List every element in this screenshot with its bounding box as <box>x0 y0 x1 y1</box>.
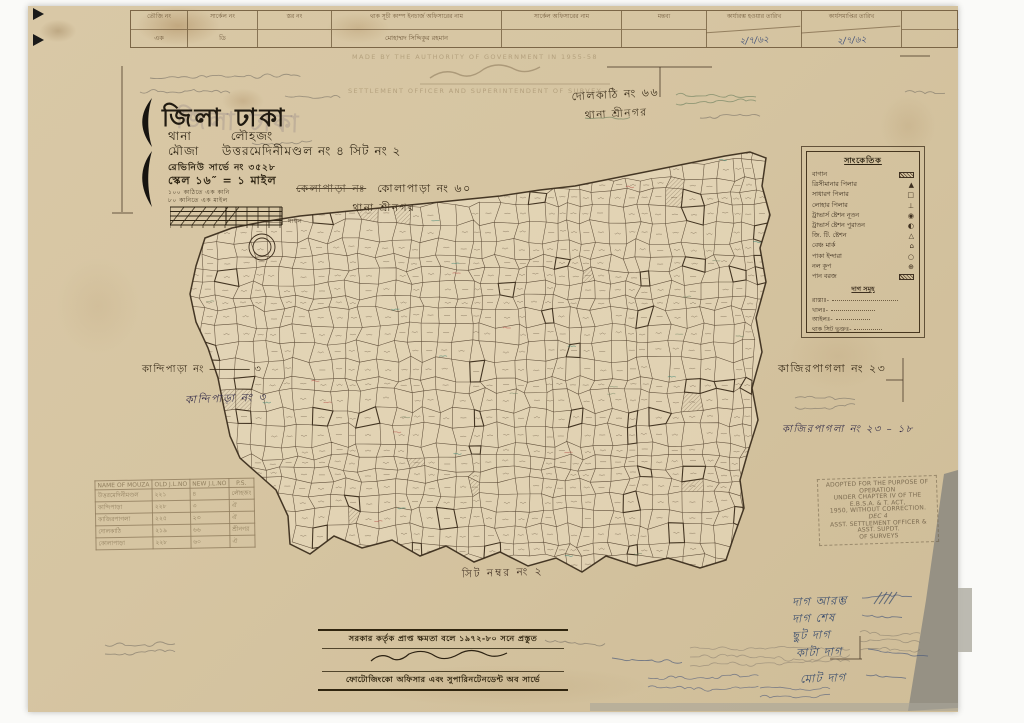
legend-item: লোহার পিলার⊥ <box>812 201 914 211</box>
legend-item: পাকা ইন্দারা○ <box>812 252 914 262</box>
neighbour-label-kazirpagla-printed: কাজিরপাগলা নং ২৩ <box>778 360 886 379</box>
mouza-table-cell: ২২১ <box>152 488 190 501</box>
mouza-table-cell: ৩ <box>190 500 229 513</box>
mouza-table-cell: কোলাপাড়া <box>96 537 153 550</box>
legend-box: সাংকেতিক বাগানত্রিসীমানার পিলার▲সাধারণ প… <box>806 151 920 333</box>
thana-value: লৌহজং <box>231 129 273 143</box>
illegible-numbers-tail <box>831 310 875 311</box>
header-col-1: তৌজি নংএক <box>131 11 187 47</box>
header-record-table: তৌজি নংএকসার্কেল নংডিস্তর নংথাক সূচী কাম… <box>130 10 958 48</box>
legend-symbol-icon: ⌂ <box>910 241 914 251</box>
legend-item: ট্রাভার্স ষ্টেশন নূতন◉ <box>812 211 914 221</box>
legend-item-label: বেঞ্চ মার্ক <box>812 241 835 251</box>
neighbour-label-kolapara: কেলাপাড়া নঃ কোলাপাড়া নং ৬০ থানা শ্রীনগ… <box>296 180 472 218</box>
legend-title: সাংকেতিক <box>812 155 914 168</box>
legend-item: ট্রাভার্স ষ্টেশন পুরাতন◐ <box>812 221 914 231</box>
neighbour-label-dolkathi: দোলকাঠি নং ৬৬ থানা শ্রীনগর <box>571 84 661 127</box>
neighbour-label-kandipara-ink: কান্দিপাড়া নং ৩ <box>185 389 268 411</box>
legend-item-label: পান বরজ <box>812 272 836 282</box>
mouza-table-cell: ২৩ <box>190 512 229 525</box>
legend-symbol-icon: ◉ <box>908 211 914 221</box>
legend-dag-line-label: রাস্তাঃ- <box>812 296 829 306</box>
printer-imprint-block: সরকার কর্তৃক প্রাপ্ত ক্ষমতা বলে ১৯৭২-৮০ … <box>318 629 568 691</box>
neighbour-label-kazirpagla-ink: কাজিরপাগলা নং ২৩ – ১৮ <box>782 422 914 439</box>
header-cell <box>902 11 959 29</box>
legend-item-label: পাকা ইন্দারা <box>812 252 842 262</box>
illegible-numbers-tail <box>832 300 898 301</box>
legend-item-label: ট্রাভার্স ষ্টেশন পুরাতন <box>812 221 865 231</box>
legend-item-label: ত্রিসীমানার পিলার <box>812 180 857 190</box>
mouza-jl-table: NAME OF MOUZAOLD J.L.NONEW J.L.NOP.S.উত্… <box>94 478 255 551</box>
value-cell: মোহাম্মদ সিদ্দিকুর রহমান <box>332 29 501 47</box>
header-col-5: সার্কেল অফিসারের নাম <box>501 11 621 47</box>
header-col-7: কার্যারম্ভ হওয়ার তারিখ২/৭/৬২ <box>706 11 801 47</box>
kolapara-thana-text: থানা শ্রীনগর <box>296 201 472 218</box>
legend-symbol-icon: ▲ <box>909 180 914 190</box>
value-cell: ২/৭/৬২ <box>706 26 801 51</box>
authority-line-1: MADE BY THE AUTHORITY OF GOVERNMENT IN 1… <box>280 53 670 61</box>
kandipara-strike: ―――― <box>210 364 250 375</box>
mouza-label: মৌজা <box>168 144 199 158</box>
value-cell <box>502 29 621 47</box>
kandipara-printed-text: কান্দিপাড়া নং <box>142 364 205 375</box>
legend-dag-line: থাক সিট ভুক্তঃ- <box>812 325 914 335</box>
value-cell: এক <box>131 29 187 47</box>
legend-dag-line: আইলঃ- <box>812 315 914 325</box>
mouza-table-cell: ২২৫ <box>152 512 190 525</box>
legend-item: বাগান <box>812 170 914 180</box>
sheet-number-label: সিট নম্বর নং ২ <box>462 565 544 585</box>
header-cell: তৌজি নং <box>131 11 187 29</box>
dag-summary-item: মোট দাগ <box>800 669 847 690</box>
legend-dag-line-label: থাক সিট ভুক্তঃ- <box>812 325 851 335</box>
header-cell: সার্কেল অফিসারের নাম <box>502 11 621 29</box>
value-cell <box>622 29 706 47</box>
adoption-stamp: ADOPTED FOR THE PURPOSE OF OPERATION UND… <box>817 475 939 546</box>
legend-item: বেঞ্চ মার্ক⌂ <box>812 241 914 251</box>
thana-label: থানা <box>168 129 192 143</box>
illegible-numbers-tail <box>854 329 882 330</box>
legend-item: ত্রিসীমানার পিলার▲ <box>812 180 914 190</box>
header-col-9 <box>901 11 959 47</box>
mouza-table-cell: উত্তরমেদিনীমণ্ডল <box>95 489 152 502</box>
dag-summary-item: কাটা দাগ <box>796 643 843 664</box>
header-col-6: মন্তব্য <box>621 11 706 47</box>
legend-dag-line-label: খালঃ- <box>812 306 828 316</box>
mouza-table-cell: ২১৯ <box>153 524 191 537</box>
value-cell <box>902 29 959 47</box>
header-cell: স্তর নং <box>258 11 331 29</box>
header-cell: মন্তব্য <box>622 11 706 29</box>
mouza-value: উত্তরমেদিনীমণ্ডল নং ৪ সিট নং ২ <box>222 144 401 158</box>
mouza-table-cell: ঐ <box>229 499 254 511</box>
imprint-signature <box>363 649 523 667</box>
imprint-line-2: ফোটোজিংকো অফিসার এবং সুপারিনটেনডেন্ট অব … <box>322 671 564 687</box>
legend-symbol-icon: ○ <box>908 252 914 262</box>
legend-section-title: দাগ সমূহ <box>812 284 914 295</box>
header-col-2: সার্কেল নংডি <box>187 11 257 47</box>
legend-items: বাগানত্রিসীমানার পিলার▲সাধারণ পিলার□লোহা… <box>812 170 914 282</box>
header-cell: থাক সূচী কাম্প ইনচার্জ অফিসারের নাম <box>332 11 501 29</box>
legend-item-label: লোহার পিলার <box>812 201 848 211</box>
header-col-8: কার্যসমাপ্তির তারিখ২/৭/৬২ <box>801 11 901 47</box>
legend-symbol-icon: □ <box>907 190 914 200</box>
mouza-table-cell: ২২৮ <box>153 536 191 549</box>
legend-item-label: নল কূপ <box>812 262 831 272</box>
imprint-line-1: সরকার কর্তৃক প্রাপ্ত ক্ষমতা বলে ১৯৭২-৮০ … <box>322 633 564 649</box>
legend-item-label: বাগান <box>812 170 827 180</box>
mouza-table-cell: ৬০ <box>191 536 230 549</box>
hatch-symbol-icon <box>899 274 914 280</box>
mouza-table-cell: ঐ <box>229 511 254 523</box>
mouza-table-cell: কাজিরপাগলা <box>95 513 152 526</box>
kolapara-main-text: কোলাপাড়া নং ৬০ <box>377 182 472 195</box>
legend-item-label: জি. টি. ষ্টেশন <box>812 231 847 241</box>
table-row: কোলাপাড়া২২৮৬০ঐ <box>96 535 255 550</box>
mouza-table-header: P.S. <box>229 478 254 487</box>
mouza-table-cell: কান্দিপাড়া <box>95 501 152 514</box>
illegible-numbers-tail <box>836 319 870 320</box>
mouza-table-cell: ঐ <box>230 535 255 547</box>
neighbour-label-kandipara-printed: কান্দিপাড়া নং ―――― ৩ <box>142 362 262 379</box>
dolkathi-main-text: দোলকাঠি নং ৬৬ <box>571 86 659 104</box>
mouza-table-cell: দোলকাঠি <box>96 525 153 538</box>
header-col-3: স্তর নং <box>257 11 331 47</box>
legend-item-label: সাধারণ পিলার <box>812 190 849 200</box>
mouza-table-cell: ৬৬ <box>190 524 229 537</box>
legend-dag-line-label: আইলঃ- <box>812 315 833 325</box>
kandipara-printed-no: ৩ <box>254 364 262 375</box>
legend-item: পান বরজ <box>812 272 914 282</box>
mouza-table-cell: ৪ <box>190 488 229 501</box>
legend-symbol-icon: ⊕ <box>908 262 914 272</box>
legend-dag-line: খালঃ- <box>812 306 914 316</box>
legend-item: জি. টি. ষ্টেশন△ <box>812 231 914 241</box>
legend-symbol-icon: △ <box>909 231 914 241</box>
legend-dag-lines: রাস্তাঃ-খালঃ-আইলঃ-থাক সিট ভুক্তঃ- <box>812 296 914 334</box>
legend-item: নল কূপ⊕ <box>812 262 914 272</box>
hatch-symbol-icon <box>899 172 914 178</box>
value-cell <box>258 29 331 47</box>
value-cell: ২/৭/৬২ <box>801 26 901 51</box>
legend-dag-line: রাস্তাঃ- <box>812 296 914 306</box>
legend-symbol-icon: ⊥ <box>908 201 914 211</box>
mouza-table-cell: শ্রীনগর <box>230 523 255 535</box>
header-cell: সার্কেল নং <box>188 11 257 29</box>
legend-symbol-icon: ◐ <box>908 221 914 231</box>
header-col-4: থাক সূচী কাম্প ইনচার্জ অফিসারের নামমোহাম… <box>331 11 501 47</box>
kolapara-struck-text: কেলাপাড়া নঃ <box>296 182 366 195</box>
legend-item: সাধারণ পিলার□ <box>812 190 914 200</box>
value-cell: ডি <box>188 29 257 47</box>
mouza-table-cell: লৌহজং <box>229 487 254 499</box>
mouza-table-cell: ২২৮ <box>152 500 190 513</box>
legend-item-label: ট্রাভার্স ষ্টেশন নূতন <box>812 211 859 221</box>
